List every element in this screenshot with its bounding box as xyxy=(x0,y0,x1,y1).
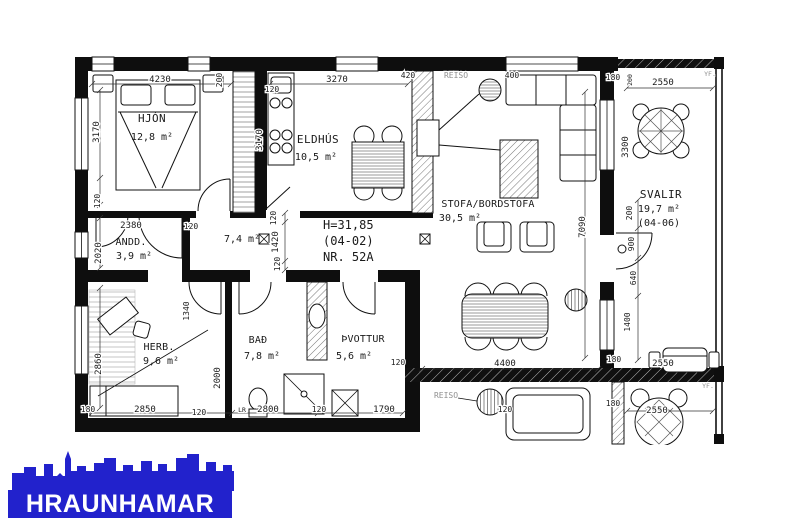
room-area-herb: 9,6 m² xyxy=(143,356,179,367)
room-area-hall: 7,4 m² xyxy=(224,234,260,245)
dim-120-hall-bottom: 120 xyxy=(273,257,282,272)
dim-herb-inner: 2000 xyxy=(213,367,223,389)
dim-eldhus-width: 3270 xyxy=(326,75,348,85)
window-bedroom-top-2 xyxy=(188,57,210,71)
floorplan-drawing: HJÓN 12,8 m² ELDHÚS 10,5 m² STOFA/BORDST… xyxy=(0,0,794,524)
dim-kitchen-depth: 3170 xyxy=(255,129,265,151)
dim-1340: 1340 xyxy=(182,301,191,320)
dim-thvottur-width: 1790 xyxy=(373,405,395,415)
room-label-herb: HERB. xyxy=(143,342,174,353)
window-living-top xyxy=(506,57,578,71)
coffee-table xyxy=(500,140,538,198)
dining-table xyxy=(462,283,548,350)
window-bedroom-top-1 xyxy=(92,57,114,71)
room-label-bad: BAÐ xyxy=(249,335,268,346)
wall-bottom-left xyxy=(75,418,420,432)
balcony-railing xyxy=(714,57,724,444)
room-label-hjon: HJÓN xyxy=(138,112,166,125)
skyline-silhouette xyxy=(12,451,234,491)
title-unit: (04-02) xyxy=(323,234,374,248)
room-code-svalir: (04-06) xyxy=(638,218,680,229)
window-kitchen-top xyxy=(336,57,378,71)
wardrobe xyxy=(233,71,255,213)
floorplan-page: HJÓN 12,8 m² ELDHÚS 10,5 m² STOFA/BORDST… xyxy=(0,0,794,524)
dim-hjon-depth: 3170 xyxy=(92,121,102,143)
dim-svalir-depth: 3300 xyxy=(621,136,631,158)
label-reiso-top: REISO xyxy=(444,71,468,80)
dim-andd-depth: 2020 xyxy=(94,242,104,264)
door-bedroom xyxy=(198,179,230,211)
dim-hall-width: 1420 xyxy=(271,231,281,253)
dim-180-svalir-top: 180 xyxy=(606,73,621,82)
balcony-table-set xyxy=(633,104,689,158)
door-laundry xyxy=(343,282,375,314)
dim-180-herb: 180 xyxy=(81,405,96,414)
room-label-andd: ANDD. xyxy=(115,237,146,248)
dim-120-laundry-right: 120 xyxy=(391,358,406,367)
door-bath xyxy=(239,282,271,314)
room-area-thvottur: 5,6 m² xyxy=(336,351,372,362)
dim-420: 420 xyxy=(401,71,416,80)
room-label-thvottur: ÞVOTTUR xyxy=(341,334,385,345)
room-area-svalir: 19,7 m² xyxy=(638,204,680,215)
dim-lower-balcony-width: 2550 xyxy=(646,406,668,416)
dim-120-hall-top: 120 xyxy=(269,211,278,226)
dim-900-door: 900 xyxy=(627,237,636,252)
dim-200-closet: 200 xyxy=(215,73,224,88)
hraunhamar-logo: HRAUNHAMAR xyxy=(8,449,234,519)
room-area-andd: 3,9 m² xyxy=(116,251,152,262)
dim-stofa-depth: 7090 xyxy=(578,216,588,238)
wall-lower-unit xyxy=(612,382,624,444)
dim-herb-depth: 2860 xyxy=(94,353,104,375)
label-reiso-lower: REISO xyxy=(434,391,458,400)
window-entry-left xyxy=(75,232,88,258)
plant xyxy=(565,289,587,311)
dim-herb-width: 2850 xyxy=(134,405,156,415)
dim-640: 640 xyxy=(629,271,638,286)
dim-120-hjon: 120 xyxy=(93,194,102,209)
dim-andd-width: 2380 xyxy=(120,221,142,231)
title-number: NR. 52A xyxy=(323,250,374,264)
door-herb xyxy=(189,282,221,314)
dim-120-andd: 120 xyxy=(184,222,199,231)
wall-top-balcony xyxy=(618,59,718,68)
room-label-svalir: SVALIR xyxy=(640,188,682,201)
dim-120-herb: 120 xyxy=(192,408,207,417)
door-kitchen-leaf xyxy=(266,187,290,209)
dim-svalir-width-top: 2550 xyxy=(652,78,674,88)
dim-400: 400 xyxy=(505,71,520,80)
dim-180-svalir-bottom-in: 180 xyxy=(607,355,622,364)
logo-text: HRAUNHAMAR xyxy=(26,492,214,517)
dim-200-door: 200 xyxy=(625,206,634,221)
room-area-hjon: 12,8 m² xyxy=(131,132,173,143)
window-living-right-1 xyxy=(600,100,614,170)
dim-hjon-width: 4230 xyxy=(149,75,171,85)
logo-skyline-icon xyxy=(8,449,234,491)
logo-bar: HRAUNHAMAR xyxy=(8,490,232,518)
room-label-stofa: STOFA/BORDSTOFA xyxy=(441,199,534,210)
room-area-bad: 7,8 m² xyxy=(244,351,280,362)
wall-laundry-right xyxy=(405,270,420,432)
window-bedroom-left xyxy=(75,98,88,170)
dim-stofa-width: 4400 xyxy=(494,359,516,369)
room-label-eldhus: ELDHÚS xyxy=(297,133,339,146)
fireplace xyxy=(479,79,501,101)
window-herb-left xyxy=(75,306,88,374)
armchairs xyxy=(477,222,554,252)
dim-120-bad: 120 xyxy=(312,405,327,414)
dim-120-closet: 120 xyxy=(265,85,280,94)
dim-180-lower: 180 xyxy=(606,399,621,408)
dim-200-svalir-top: 200 xyxy=(626,74,634,86)
dim-120-lower: 120 xyxy=(498,405,513,414)
door-symbol xyxy=(618,245,626,253)
kitchen-table xyxy=(352,126,404,200)
dim-svalir-width-bottom: 2550 xyxy=(652,359,674,369)
label-yf-bottom: YF. xyxy=(702,382,714,390)
washing-machine xyxy=(332,390,358,416)
label-lr: LR xyxy=(238,406,246,414)
dim-bad-width: 2800 xyxy=(257,405,279,415)
label-yf-top: YF. xyxy=(704,70,716,78)
room-area-eldhus: 10,5 m² xyxy=(295,152,337,163)
room-area-stofa: 30,5 m² xyxy=(439,213,481,224)
window-living-right-2 xyxy=(600,300,614,350)
wall-herb-bath xyxy=(225,282,232,418)
title-height: H=31,85 xyxy=(323,218,374,232)
lower-unit xyxy=(458,388,687,446)
dim-1400: 1400 xyxy=(623,312,632,331)
